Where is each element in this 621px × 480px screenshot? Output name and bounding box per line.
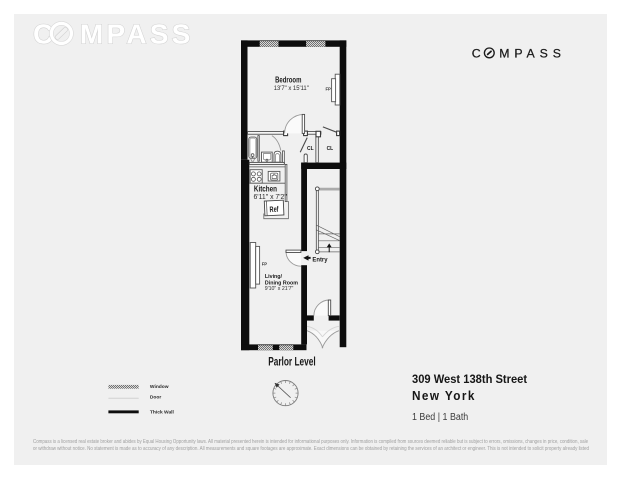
svg-text:Thick Wall: Thick Wall xyxy=(150,409,175,415)
svg-text:Ref: Ref xyxy=(269,206,279,215)
svg-text:13'7" x 15'11": 13'7" x 15'11" xyxy=(274,85,309,92)
svg-text:FP: FP xyxy=(326,87,332,92)
svg-text:Bedroom: Bedroom xyxy=(275,77,301,85)
svg-text:Parlor Level: Parlor Level xyxy=(268,356,316,369)
svg-text:Living/: Living/ xyxy=(265,274,283,280)
svg-text:Door: Door xyxy=(150,395,162,401)
svg-text:MPASS: MPASS xyxy=(499,46,566,60)
svg-text:9'10" x 21'7": 9'10" x 21'7" xyxy=(265,286,294,292)
svg-text:Window: Window xyxy=(150,384,169,390)
svg-text:Entry: Entry xyxy=(312,256,328,263)
svg-text:CL: CL xyxy=(307,146,314,152)
svg-text:C: C xyxy=(472,46,486,60)
svg-text:FP: FP xyxy=(262,262,268,267)
svg-text:MPASS: MPASS xyxy=(80,19,194,50)
svg-text:CL: CL xyxy=(327,146,334,152)
